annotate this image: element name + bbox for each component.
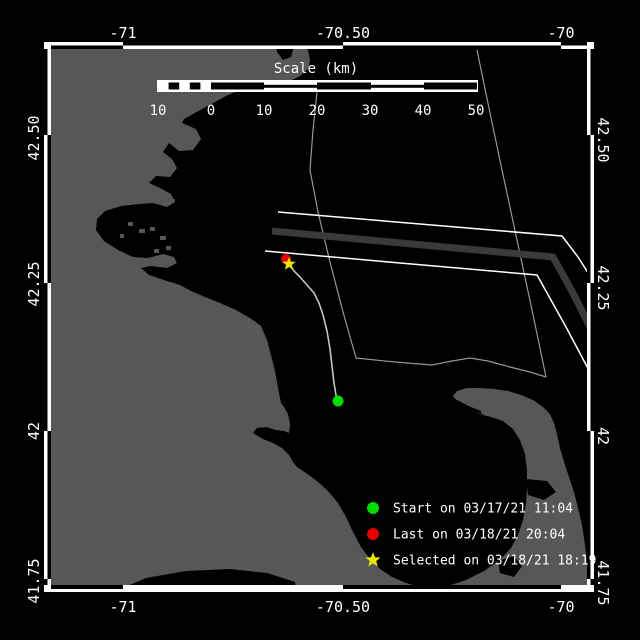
scale-tick-1: 0 [207,103,215,119]
legend-start-label: Start on 03/17/21 11:04 [393,502,573,517]
drifter-track [286,258,338,401]
legend-start-dot-icon [367,502,379,514]
lon-label-bottom-2: -70.50 [316,598,370,616]
sanctuary-west-edge [310,92,356,358]
lon-label-top-1: -71 [109,24,136,42]
lat-label-left-1: 42.50 [25,115,43,160]
lat-label-left-2: 42.25 [25,261,43,306]
sanctuary-south-edge [356,358,546,377]
lon-label-top-3: -70 [547,24,574,42]
tss-lane-south [265,251,592,376]
lat-label-right-1: 42.50 [594,117,612,162]
lat-label-right-2: 42.25 [594,265,612,310]
scale-tick-6: 50 [468,103,485,119]
lat-label-right-3: 42 [594,427,612,445]
scale-bar [158,81,478,92]
legend-last-dot-icon [367,528,379,540]
lon-label-bottom-1: -71 [109,598,136,616]
lat-label-left-3: 42 [25,422,43,440]
scale-bar-title: Scale (km) [274,61,358,77]
scale-tick-3: 20 [309,103,326,119]
scale-tick-0: 10 [150,103,167,119]
lon-label-top-2: -70.50 [316,24,370,42]
scale-tick-5: 40 [415,103,432,119]
sanctuary-east-edge [477,50,546,377]
map-canvas [0,0,640,640]
lat-label-left-4: 41.75 [25,558,43,603]
scale-tick-4: 30 [362,103,379,119]
scale-tick-2: 10 [256,103,273,119]
legend-last-label: Last on 03/18/21 20:04 [393,528,565,543]
sanctuary-boundary [310,50,546,377]
legend-selected-label: Selected on 03/18/21 18:19 [393,554,597,569]
lat-label-right-4: 41.75 [594,560,612,605]
drifter-track-map: -71 -70.50 -70 -71 -70.50 -70 42.50 42.2… [0,0,640,640]
start-marker[interactable] [333,396,344,407]
lon-label-bottom-3: -70 [547,598,574,616]
tss-separation-zone [272,231,592,331]
